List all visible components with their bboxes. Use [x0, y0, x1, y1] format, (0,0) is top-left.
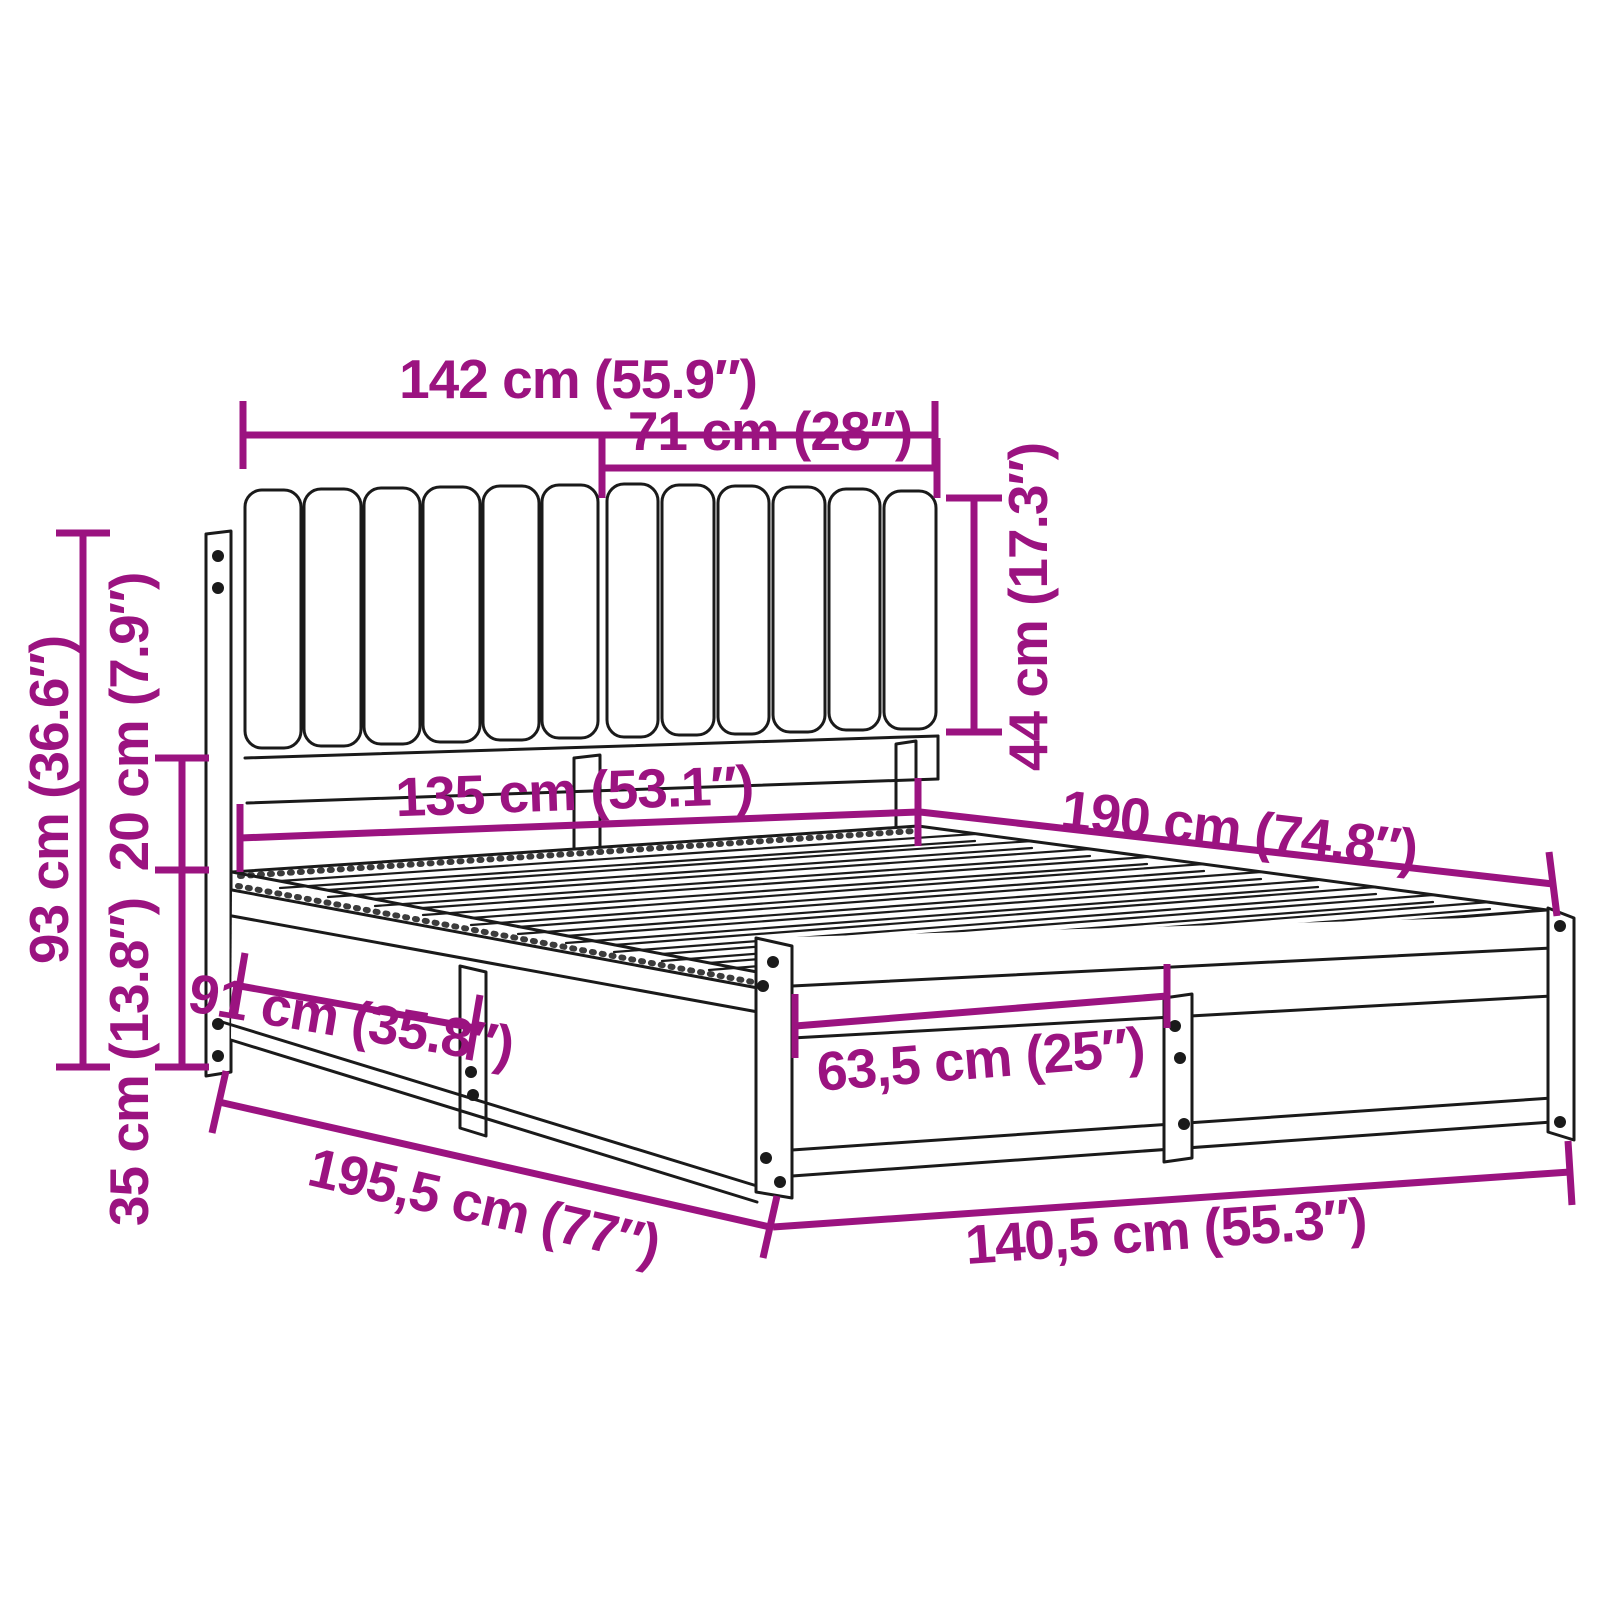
headboard-cushion-right: [607, 484, 936, 737]
dim-label-gap-under-cushion: 20 cm (7.9″): [98, 573, 160, 872]
dim-label-inner-width-head: 135 cm (53.1″): [394, 754, 754, 828]
bed-diagram: 142 cm (55.9″) 71 cm (28″) 44 cm (17.3″)…: [0, 0, 1600, 1600]
dim-label-cushion-height: 44 cm (17.3″): [997, 443, 1059, 771]
dim-label-outer-width-foot: 140,5 cm (55.3″): [963, 1186, 1368, 1276]
headboard-cushion-left: [245, 485, 598, 748]
dim-label-headboard-height: 93 cm (36.6″): [18, 636, 80, 964]
foot-right-post: [1548, 908, 1574, 1140]
dim-line-gap-under-cushion: [155, 758, 209, 870]
dim-line-cushion-height: [946, 498, 1002, 732]
dimension-diagram-canvas: 142 cm (55.9″) 71 cm (28″) 44 cm (17.3″)…: [0, 0, 1600, 1600]
dim-label-frame-height: 35 cm (13.8″): [98, 898, 160, 1226]
dim-label-cushion-width: 71 cm (28″): [628, 400, 912, 462]
